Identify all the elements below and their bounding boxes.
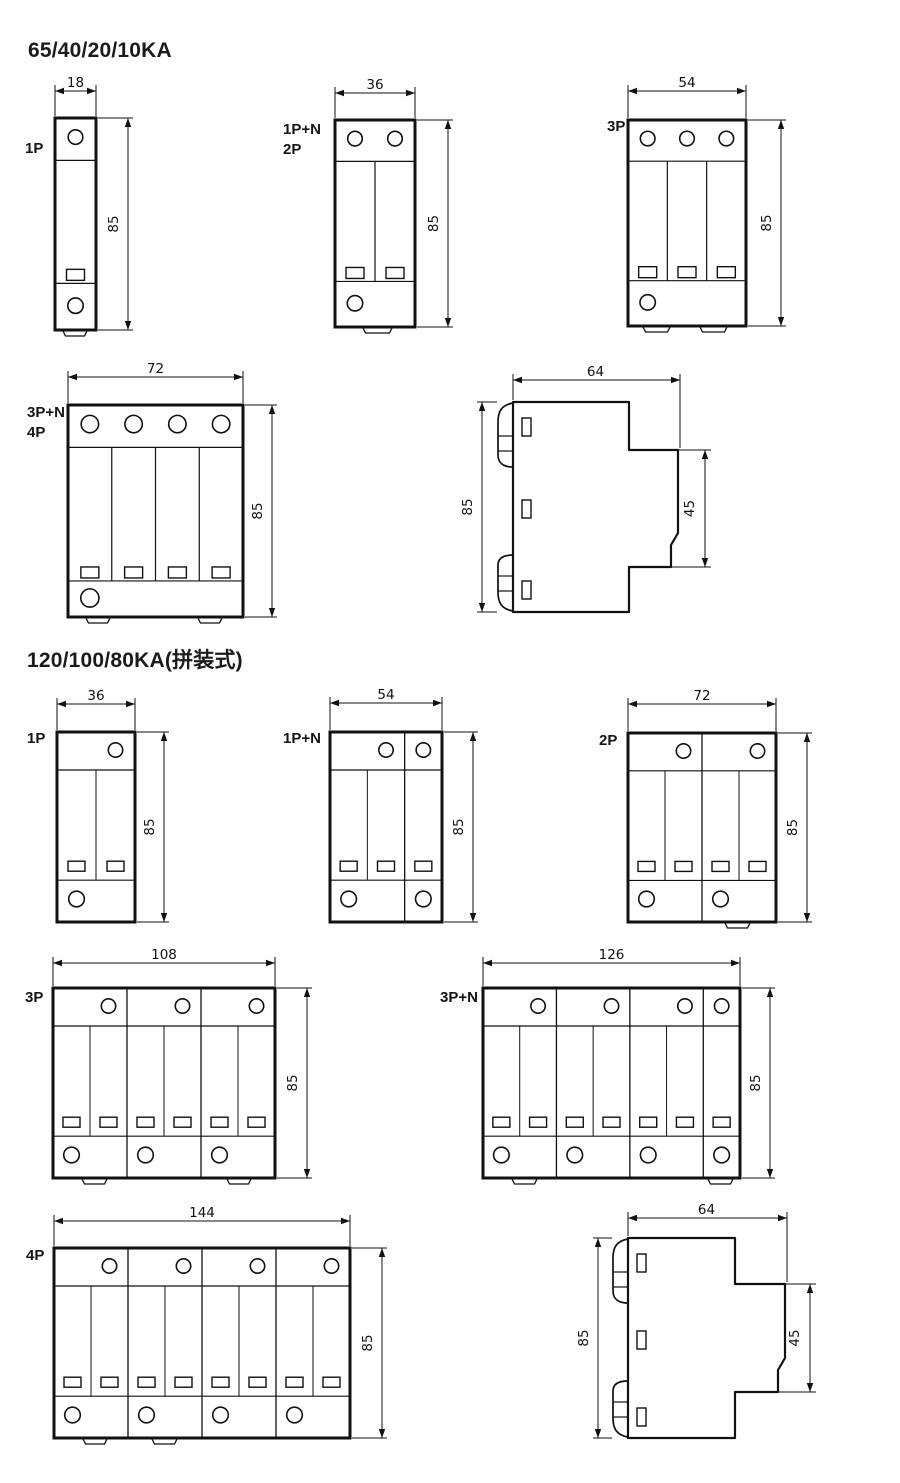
width-dim-label: 144 [189, 1205, 215, 1221]
width-dim-label: 18 [67, 75, 84, 91]
label-ka120-1p: 1P [27, 730, 45, 748]
width-dim-label: 72 [693, 688, 710, 704]
figure-ka120-3p: 10885 [53, 947, 312, 1184]
label-ka65-2p: 2P [283, 141, 301, 159]
height-dim-label: 85 [576, 1329, 592, 1346]
height-dim-label: 85 [250, 502, 266, 519]
width-dim-label: 64 [587, 364, 604, 380]
dimension-diagram: 1885368554857285648545368554857285108851… [0, 0, 900, 1483]
label-ka120-1pn: 1P+N [283, 730, 321, 748]
section-title-120ka: 120/100/80KA(拼装式) [27, 644, 243, 674]
figure-ka120-4p: 14485 [54, 1205, 387, 1444]
figure-ka65-3pn-4p: 7285 [68, 361, 277, 623]
label-ka120-3pn: 3P+N [440, 989, 478, 1007]
figure-ka65-side: 648545 [460, 364, 711, 612]
figure-ka65-3p: 5485 [628, 75, 786, 332]
page: 1885368554857285648545368554857285108851… [0, 0, 900, 1483]
label-ka65-1pn: 1P+N [283, 121, 321, 139]
figure-ka65-1p: 1885 [55, 75, 133, 336]
label-ka65-3pn: 3P+N [27, 404, 65, 422]
width-dim-label: 54 [678, 75, 695, 91]
width-dim-label: 54 [377, 687, 394, 703]
height-dim-label: 85 [451, 818, 467, 835]
height-dim-label: 85 [785, 819, 801, 836]
label-ka65-4p: 4P [27, 424, 45, 442]
height-dim-label: 85 [106, 215, 122, 232]
depth-dim-label: 45 [787, 1329, 803, 1346]
figure-ka120-1p: 3685 [57, 688, 169, 922]
label-ka65-1p: 1P [25, 140, 43, 158]
width-dim-label: 64 [698, 1202, 715, 1218]
label-ka65-3p: 3P [607, 118, 625, 136]
height-dim-label: 85 [460, 498, 476, 515]
height-dim-label: 85 [759, 214, 775, 231]
label-ka120-2p: 2P [599, 732, 617, 750]
width-dim-label: 36 [366, 77, 383, 93]
height-dim-label: 85 [142, 818, 158, 835]
width-dim-label: 72 [147, 361, 164, 377]
depth-dim-label: 45 [682, 500, 698, 517]
section-title-65ka: 65/40/20/10KA [28, 39, 172, 63]
figure-ka120-1pn: 5485 [330, 687, 478, 922]
width-dim-label: 36 [87, 688, 104, 704]
figure-ka120-3pn: 12685 [483, 947, 775, 1184]
label-ka120-3p: 3P [25, 989, 43, 1007]
label-ka120-4p: 4P [26, 1247, 44, 1265]
height-dim-label: 85 [360, 1334, 376, 1351]
figure-ka120-2p: 7285 [628, 688, 812, 928]
height-dim-label: 85 [748, 1074, 764, 1091]
figure-ka120-side: 648545 [576, 1202, 816, 1438]
height-dim-label: 85 [426, 215, 442, 232]
figure-ka65-1pn-2p: 3685 [335, 77, 453, 333]
width-dim-label: 126 [599, 947, 625, 963]
height-dim-label: 85 [285, 1074, 301, 1091]
width-dim-label: 108 [151, 947, 177, 963]
